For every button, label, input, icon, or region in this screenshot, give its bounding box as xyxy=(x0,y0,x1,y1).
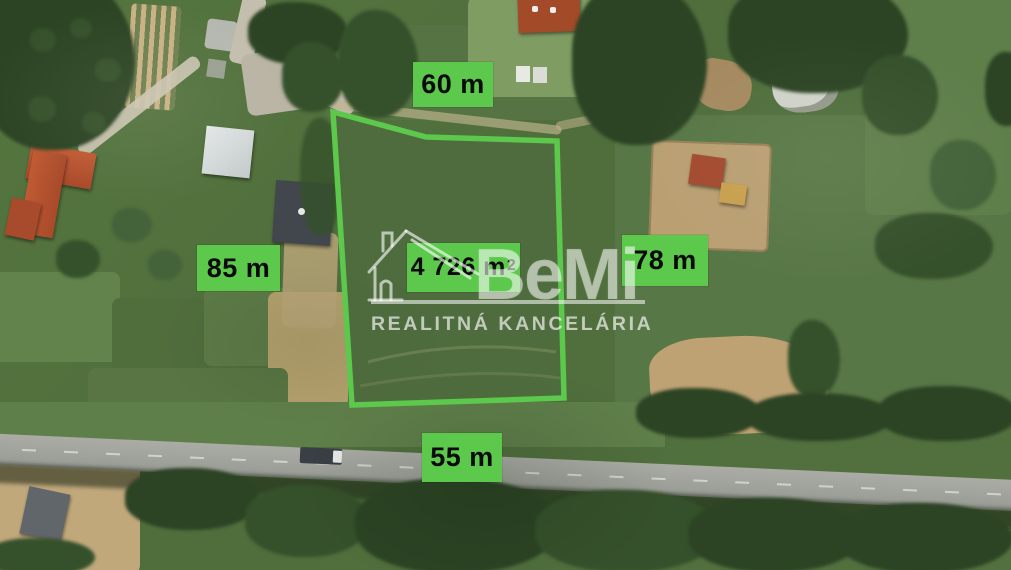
dimension-text: 78 m xyxy=(633,245,697,276)
dimension-label-left: 85 m xyxy=(197,245,280,291)
dimension-text: 85 m xyxy=(207,253,271,284)
dimension-text: 55 m xyxy=(430,442,494,473)
dimension-text: 60 m xyxy=(421,69,485,100)
dimension-label-top: 60 m xyxy=(413,62,493,107)
area-label: 4 726 m2 xyxy=(407,243,520,292)
aerial-listing-image: 60 m 85 m 78 m 55 m 4 726 m2 BeMi REALIT… xyxy=(0,0,1011,570)
dimension-label-right: 78 m xyxy=(622,235,708,286)
area-value: 4 726 m xyxy=(411,253,506,282)
dimension-label-bottom: 55 m xyxy=(422,433,502,482)
